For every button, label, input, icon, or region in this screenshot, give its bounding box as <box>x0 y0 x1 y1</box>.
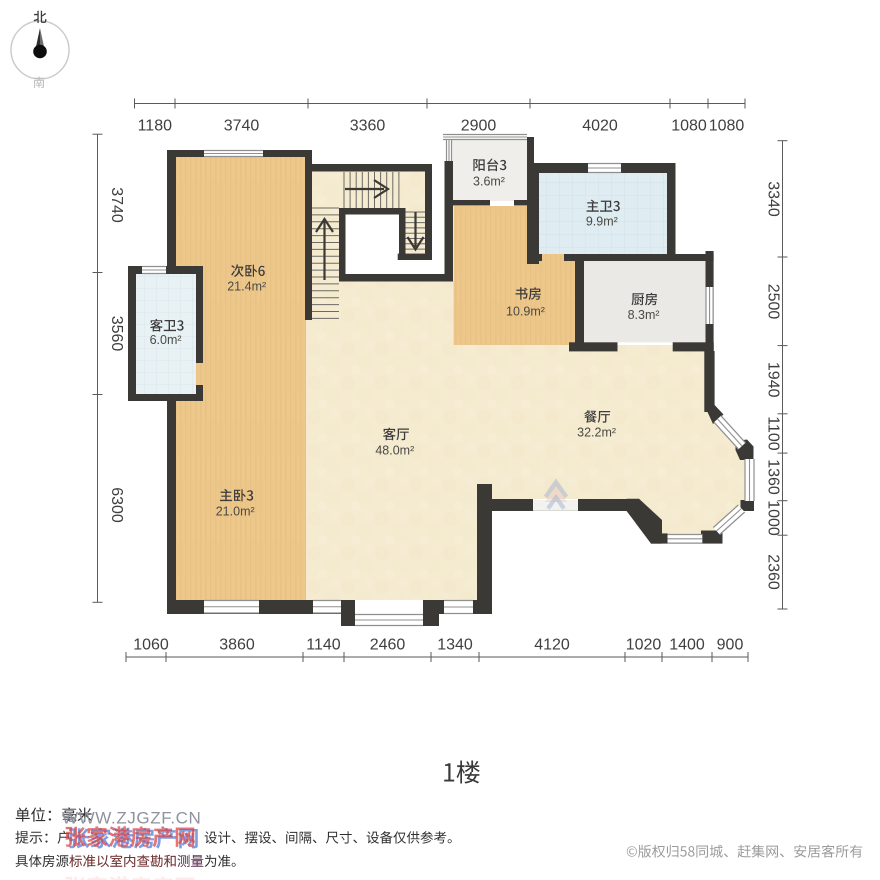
svg-text:3.6m²: 3.6m² <box>473 175 505 189</box>
svg-text:900: 900 <box>717 637 744 654</box>
svg-text:1340: 1340 <box>437 637 473 654</box>
svg-text:3740: 3740 <box>108 187 125 223</box>
svg-text:6300: 6300 <box>108 487 125 523</box>
svg-text:9.9m²: 9.9m² <box>586 215 618 229</box>
svg-text:2360: 2360 <box>765 554 782 590</box>
svg-text:21.0m²: 21.0m² <box>216 505 255 519</box>
svg-text:1080: 1080 <box>709 118 745 135</box>
svg-text:32.2m²: 32.2m² <box>577 426 616 440</box>
svg-text:1180: 1180 <box>138 118 173 135</box>
svg-text:3860: 3860 <box>219 637 255 654</box>
svg-text:3340: 3340 <box>765 181 782 217</box>
svg-text:1000: 1000 <box>765 500 782 536</box>
svg-text:6.0m²: 6.0m² <box>150 333 182 347</box>
svg-text:2500: 2500 <box>765 284 782 320</box>
svg-text:1940: 1940 <box>765 362 782 398</box>
svg-text:1400: 1400 <box>669 637 705 654</box>
svg-text:WWW.ZJGZF.CN: WWW.ZJGZF.CN <box>62 809 201 828</box>
svg-text:3560: 3560 <box>108 316 125 352</box>
svg-text:1100: 1100 <box>765 416 782 451</box>
svg-text:1080: 1080 <box>671 118 707 135</box>
svg-text:21.4m²: 21.4m² <box>227 279 266 293</box>
svg-text:2900: 2900 <box>461 118 497 135</box>
svg-text:48.0m²: 48.0m² <box>375 443 414 457</box>
svg-text:4120: 4120 <box>534 637 570 654</box>
svg-text:1020: 1020 <box>626 637 662 654</box>
svg-text:3740: 3740 <box>224 118 260 135</box>
svg-text:1060: 1060 <box>133 637 169 654</box>
svg-text:8.3m²: 8.3m² <box>628 308 660 322</box>
svg-text:10.9m²: 10.9m² <box>506 304 545 318</box>
svg-text:1360: 1360 <box>765 459 782 495</box>
svg-text:4020: 4020 <box>582 118 618 135</box>
svg-text:2460: 2460 <box>370 637 406 654</box>
svg-text:3360: 3360 <box>350 118 386 135</box>
svg-text:1140: 1140 <box>306 637 341 654</box>
